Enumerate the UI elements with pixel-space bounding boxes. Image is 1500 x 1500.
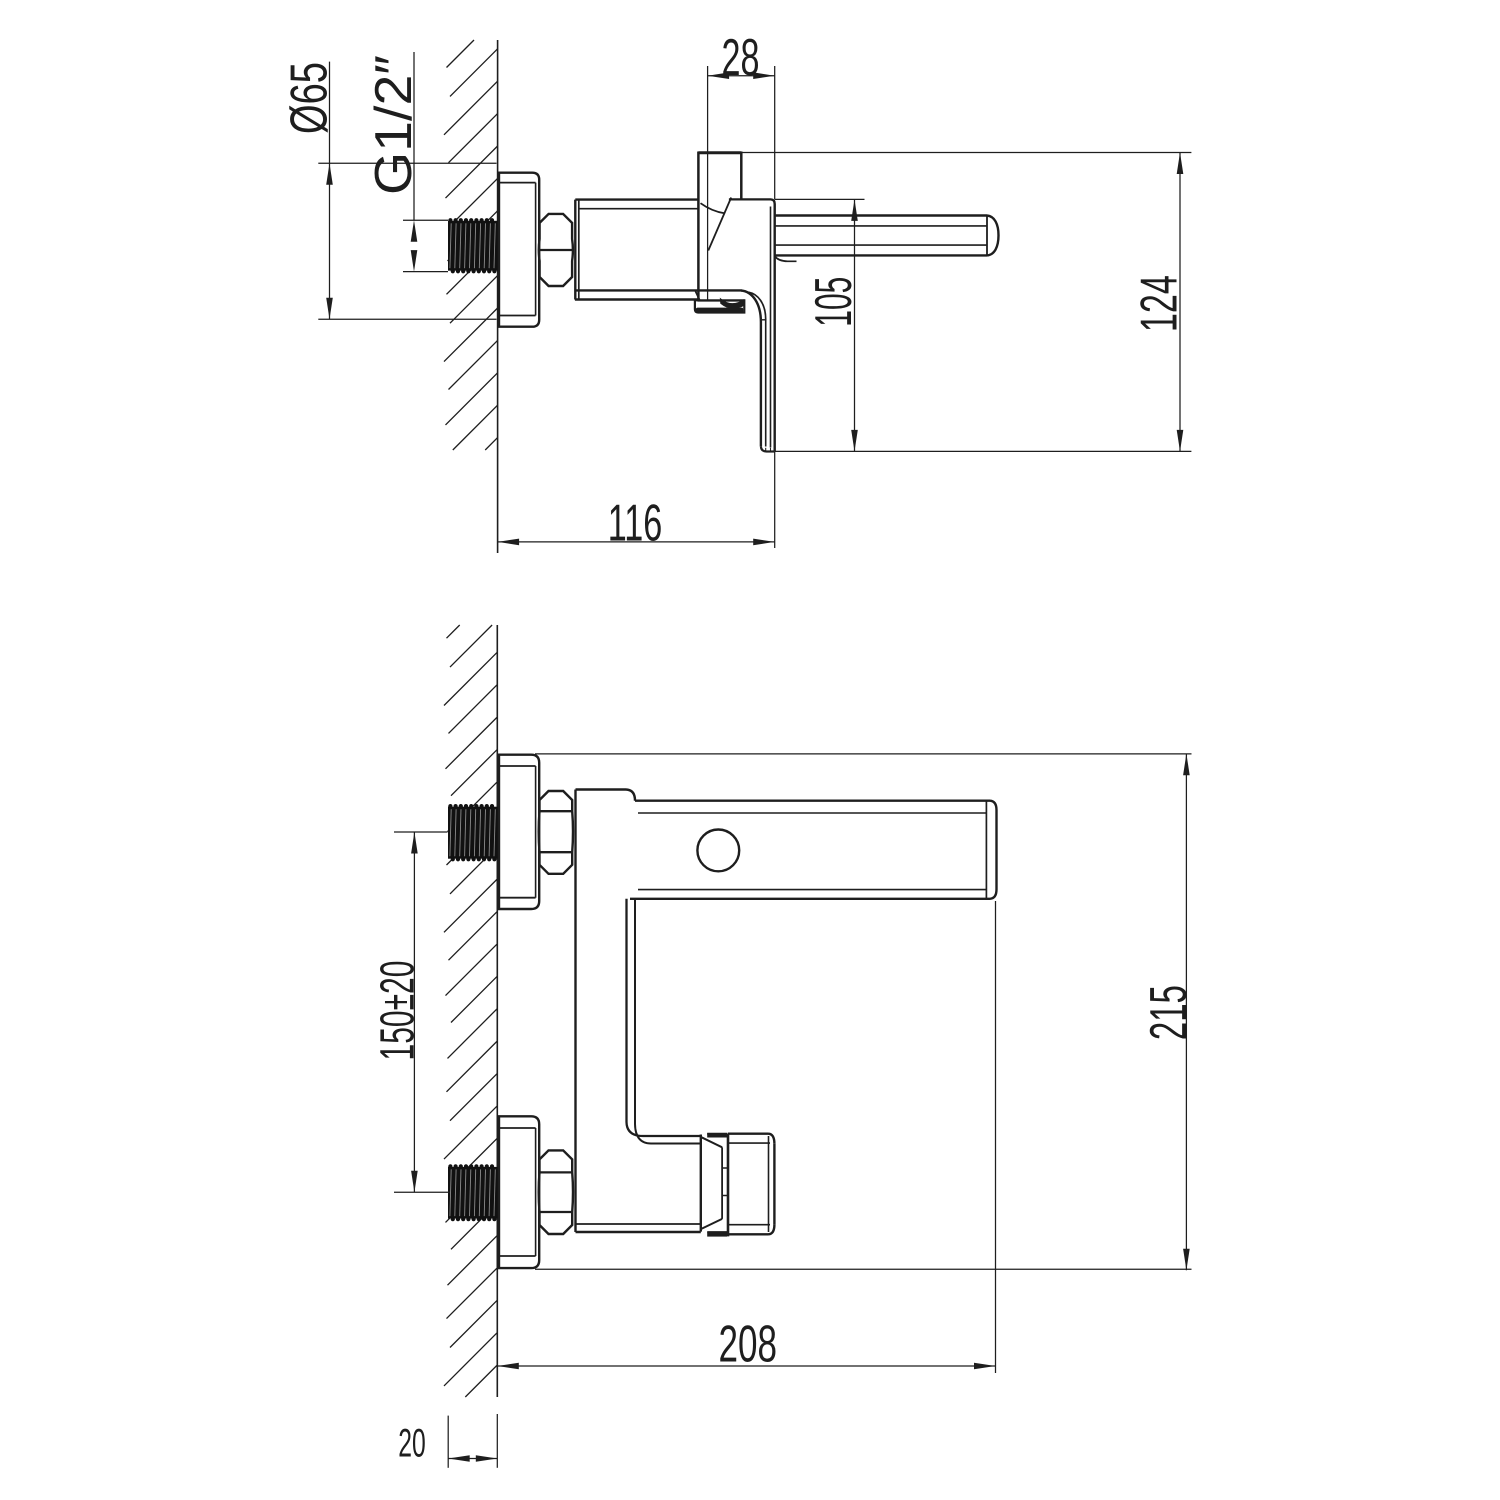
svg-text:215: 215 bbox=[1141, 985, 1198, 1040]
svg-text:150±20: 150±20 bbox=[371, 961, 424, 1061]
svg-text:105: 105 bbox=[804, 277, 862, 327]
svg-text:20: 20 bbox=[398, 1422, 425, 1467]
svg-text:208: 208 bbox=[719, 1316, 777, 1373]
svg-text:116: 116 bbox=[608, 494, 662, 552]
